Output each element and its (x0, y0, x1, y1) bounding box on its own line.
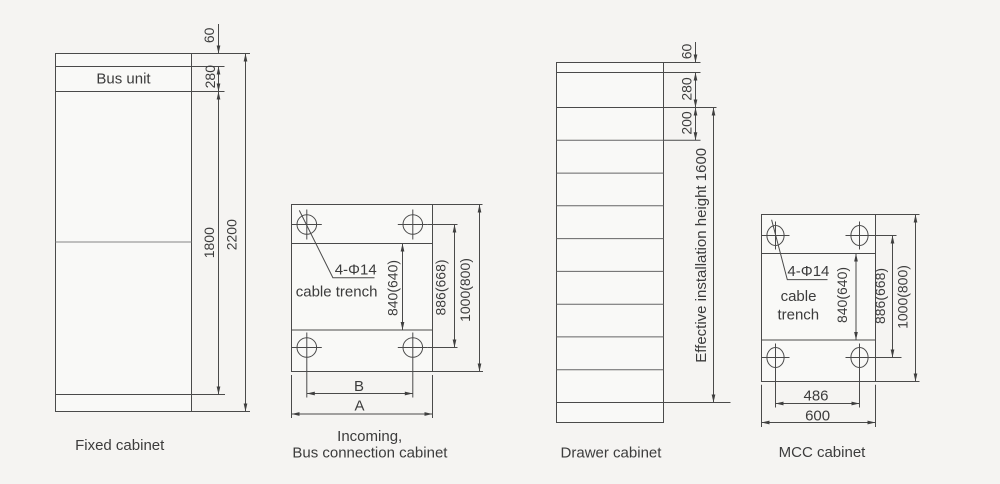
svg-text:Bus unit: Bus unit (96, 71, 151, 88)
svg-text:600: 600 (805, 407, 830, 424)
svg-text:A: A (354, 398, 364, 415)
svg-text:Incoming,: Incoming, (337, 428, 402, 445)
svg-text:200: 200 (679, 111, 695, 135)
svg-text:1000(800): 1000(800) (894, 265, 910, 329)
svg-text:60: 60 (679, 44, 695, 60)
svg-text:B: B (354, 378, 364, 395)
svg-text:840(640): 840(640) (834, 267, 850, 323)
svg-text:486: 486 (803, 388, 828, 405)
svg-text:Fixed cabinet: Fixed cabinet (75, 437, 165, 454)
svg-text:280: 280 (679, 77, 695, 101)
svg-text:MCC cabinet: MCC cabinet (779, 444, 867, 461)
svg-text:Drawer cabinet: Drawer cabinet (561, 444, 663, 461)
svg-text:1000(800): 1000(800) (457, 258, 473, 322)
svg-text:886(668): 886(668) (432, 259, 448, 315)
svg-text:trench: trench (777, 306, 819, 323)
svg-text:1800: 1800 (201, 227, 217, 258)
svg-text:840(640): 840(640) (384, 260, 400, 316)
svg-text:Effective installation height: Effective installation height 1600 (693, 148, 710, 363)
svg-text:60: 60 (201, 27, 217, 43)
svg-text:2200: 2200 (223, 219, 239, 250)
svg-text:886(668): 886(668) (872, 268, 888, 324)
svg-text:cable: cable (781, 288, 817, 305)
svg-text:280: 280 (202, 65, 218, 89)
svg-text:4-Φ14: 4-Φ14 (787, 263, 829, 280)
svg-text:Bus connection cabinet: Bus connection cabinet (292, 444, 448, 461)
svg-text:4-Φ14: 4-Φ14 (335, 261, 377, 278)
svg-text:cable trench: cable trench (296, 283, 378, 300)
